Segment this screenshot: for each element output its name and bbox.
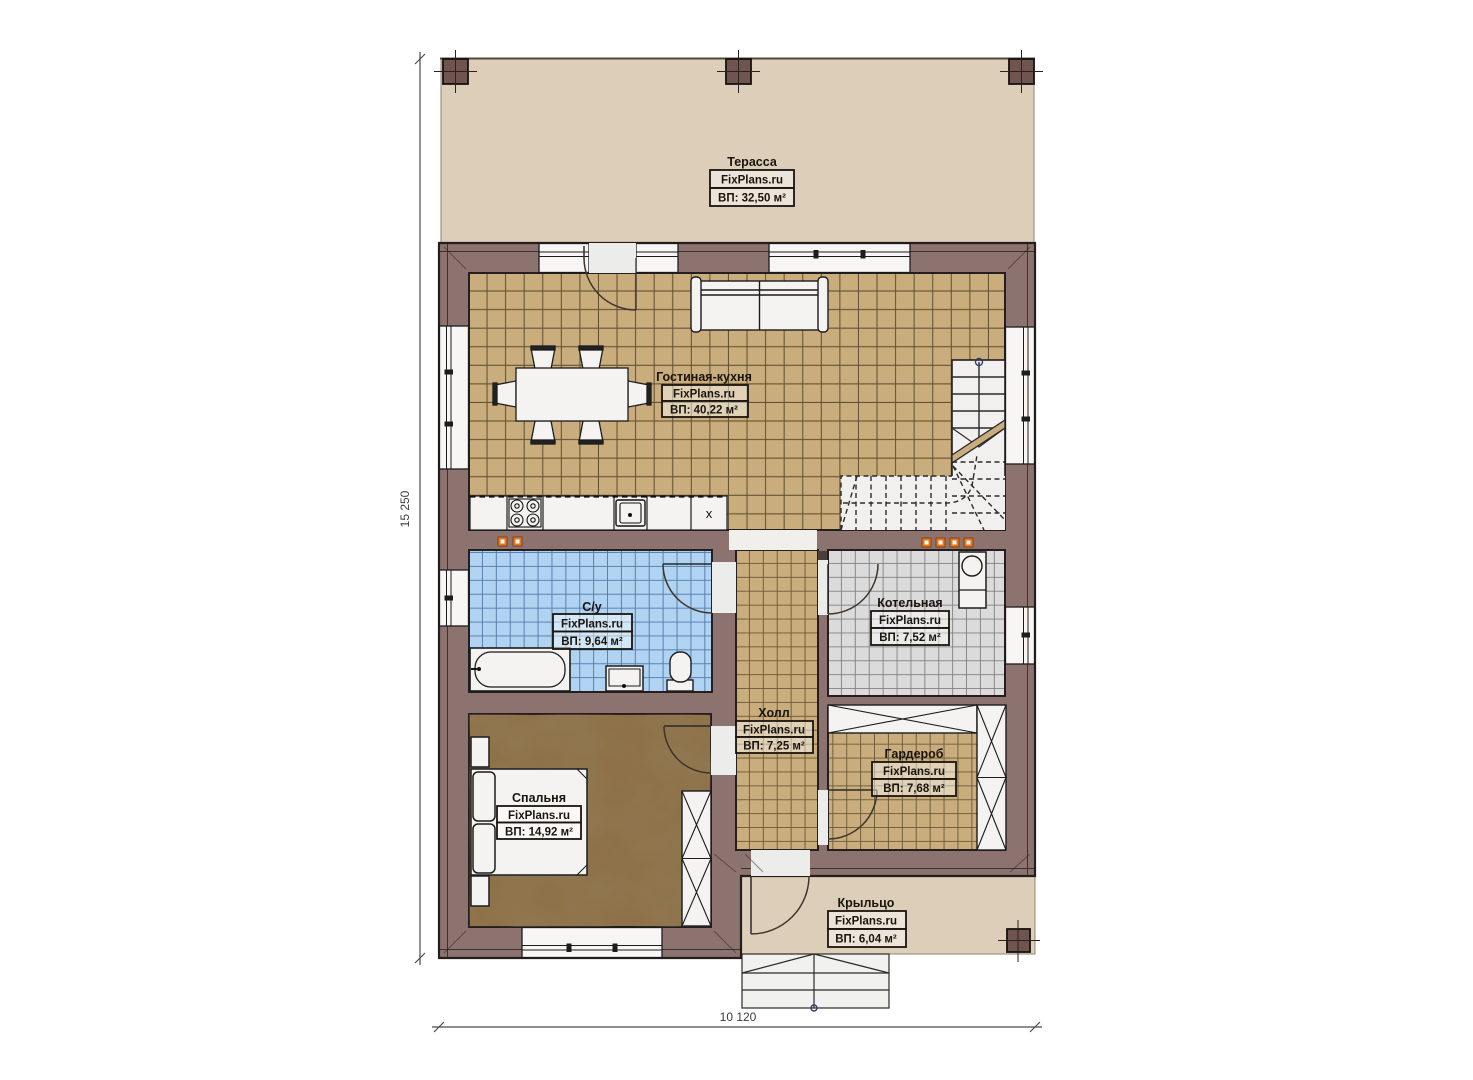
svg-text:FixPlans.ru: FixPlans.ru xyxy=(743,725,805,737)
svg-text:10 120: 10 120 xyxy=(720,1010,757,1024)
svg-text:ВП: 7,25 м²: ВП: 7,25 м² xyxy=(743,741,805,753)
svg-text:x: x xyxy=(706,506,713,521)
svg-text:FixPlans.ru: FixPlans.ru xyxy=(879,615,941,627)
svg-text:Гардероб: Гардероб xyxy=(884,747,943,761)
svg-text:Спальня: Спальня xyxy=(512,791,566,805)
svg-text:Терасса: Терасса xyxy=(727,155,778,169)
svg-text:15 250: 15 250 xyxy=(398,490,412,527)
svg-text:ВП: 6,04 м²: ВП: 6,04 м² xyxy=(835,934,897,946)
svg-text:ВП: 9,64 м²: ВП: 9,64 м² xyxy=(561,636,623,648)
svg-text:ВП: 7,52 м²: ВП: 7,52 м² xyxy=(879,632,941,644)
svg-text:Крыльцо: Крыльцо xyxy=(838,896,895,910)
svg-text:FixPlans.ru: FixPlans.ru xyxy=(835,916,897,928)
svg-text:FixPlans.ru: FixPlans.ru xyxy=(673,389,735,401)
svg-text:Гостиная-кухня: Гостиная-кухня xyxy=(656,370,752,384)
svg-text:FixPlans.ru: FixPlans.ru xyxy=(883,766,945,778)
svg-text:ВП: 32,50 м²: ВП: 32,50 м² xyxy=(718,193,786,205)
svg-text:Котельная: Котельная xyxy=(877,596,942,610)
svg-text:Холл: Холл xyxy=(758,706,789,720)
svg-text:С/у: С/у xyxy=(582,600,602,614)
svg-text:ВП: 14,92 м²: ВП: 14,92 м² xyxy=(505,826,573,838)
svg-text:FixPlans.ru: FixPlans.ru xyxy=(561,618,623,630)
svg-text:FixPlans.ru: FixPlans.ru xyxy=(721,175,783,187)
svg-text:ВП: 7,68 м²: ВП: 7,68 м² xyxy=(883,783,945,795)
svg-text:FixPlans.ru: FixPlans.ru xyxy=(508,810,570,822)
svg-text:ВП: 40,22 м²: ВП: 40,22 м² xyxy=(670,405,738,417)
